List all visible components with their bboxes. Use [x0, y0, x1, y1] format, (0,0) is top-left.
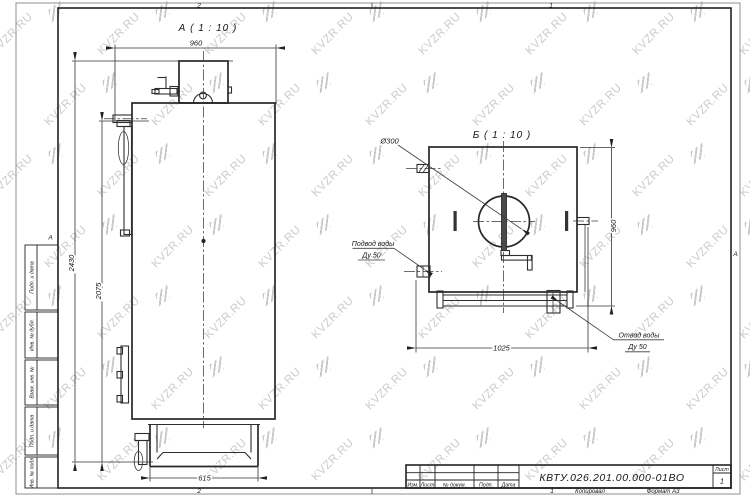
outlet-label: Отвод воды Ду 50	[559, 302, 664, 352]
view-b-title: Б ( 1 : 10 )	[473, 130, 532, 141]
col-header-doc: № докум.	[443, 482, 466, 488]
sheet-number: 1	[720, 477, 724, 486]
field-label: Взам. инв. №	[30, 366, 36, 398]
zone-letter-left: А	[47, 235, 52, 242]
door-hinge-strip	[124, 127, 132, 235]
zone-number: 1	[549, 3, 553, 10]
door-clamp-left	[454, 211, 457, 231]
door-clamp-right	[565, 211, 568, 231]
field-label: Подп. и дата	[30, 415, 36, 448]
svg-text:Ду 50: Ду 50	[361, 253, 380, 260]
document-number: КВТУ.026.201.00.000-01ВО	[539, 472, 684, 484]
dim-text-2075: 2075	[94, 282, 103, 301]
col-header-list: Лист	[420, 482, 435, 488]
footer-copied: Копировал	[575, 489, 605, 495]
inlet-label: Подвод воды Ду 50	[352, 240, 425, 270]
center-point	[201, 239, 205, 243]
dim-text-diameter: Ø300	[379, 137, 399, 146]
col-header-izm: Изм.	[407, 482, 418, 488]
view-a-title: А ( 1 : 10 )	[178, 23, 238, 34]
lifting-lug	[194, 94, 213, 104]
sheet-frame: 2 1 2 1 А А	[16, 3, 740, 496]
col-header-data: Дата	[501, 482, 516, 488]
engineering-drawing: 2 1 2 1 А А Подп. и дата Инв. № дубл. Вз…	[0, 0, 750, 500]
zone-number: 2	[196, 3, 201, 10]
ash-pan-base	[148, 425, 260, 467]
dim-text-960: 960	[190, 39, 203, 48]
dim-text-2430: 2430	[67, 254, 76, 273]
sheet-label: Лист	[714, 467, 729, 473]
base-latch	[134, 434, 149, 471]
base-channel	[437, 291, 573, 314]
dim-text-615: 615	[198, 474, 211, 483]
zone-letter-right: А	[732, 251, 737, 258]
water-outlet-stub	[547, 291, 560, 314]
title-block: Изм. Лист № докум. Подп. Дата КВТУ.026.2…	[406, 465, 731, 495]
zone-number: 2	[196, 488, 201, 495]
dim-text-1025: 1025	[493, 343, 511, 352]
col-header-podp: Подп.	[479, 482, 493, 488]
door-hinge-bar	[502, 194, 507, 251]
sheet-inner-frame	[58, 8, 731, 488]
svg-text:Отвод воды: Отвод воды	[619, 331, 661, 339]
leader-diameter	[398, 145, 522, 229]
dim-text-960b: 960	[609, 219, 618, 232]
field-label: Инв. № подл.	[30, 456, 36, 488]
svg-text:Ду 50: Ду 50	[627, 344, 646, 351]
drawing-sheet: { "watermark": { "text": "KVZR.RU" }, "s…	[0, 0, 750, 500]
view-a-drawing: А ( 1 : 10 ) 960 2430 2075	[67, 23, 276, 483]
margin-fields: Подп. и дата Инв. № дубл. Взам. инв. № П…	[25, 245, 58, 489]
svg-text:Подвод воды: Подвод воды	[352, 240, 395, 248]
field-label: Инв. № дубл.	[30, 319, 36, 351]
field-label: Подп. и дата	[30, 261, 36, 294]
chimney-fitting	[152, 77, 178, 97]
zone-number: 1	[550, 488, 554, 495]
view-b-drawing: Б ( 1 : 10 )	[352, 130, 664, 353]
footer-format: Формат А3	[647, 489, 680, 495]
